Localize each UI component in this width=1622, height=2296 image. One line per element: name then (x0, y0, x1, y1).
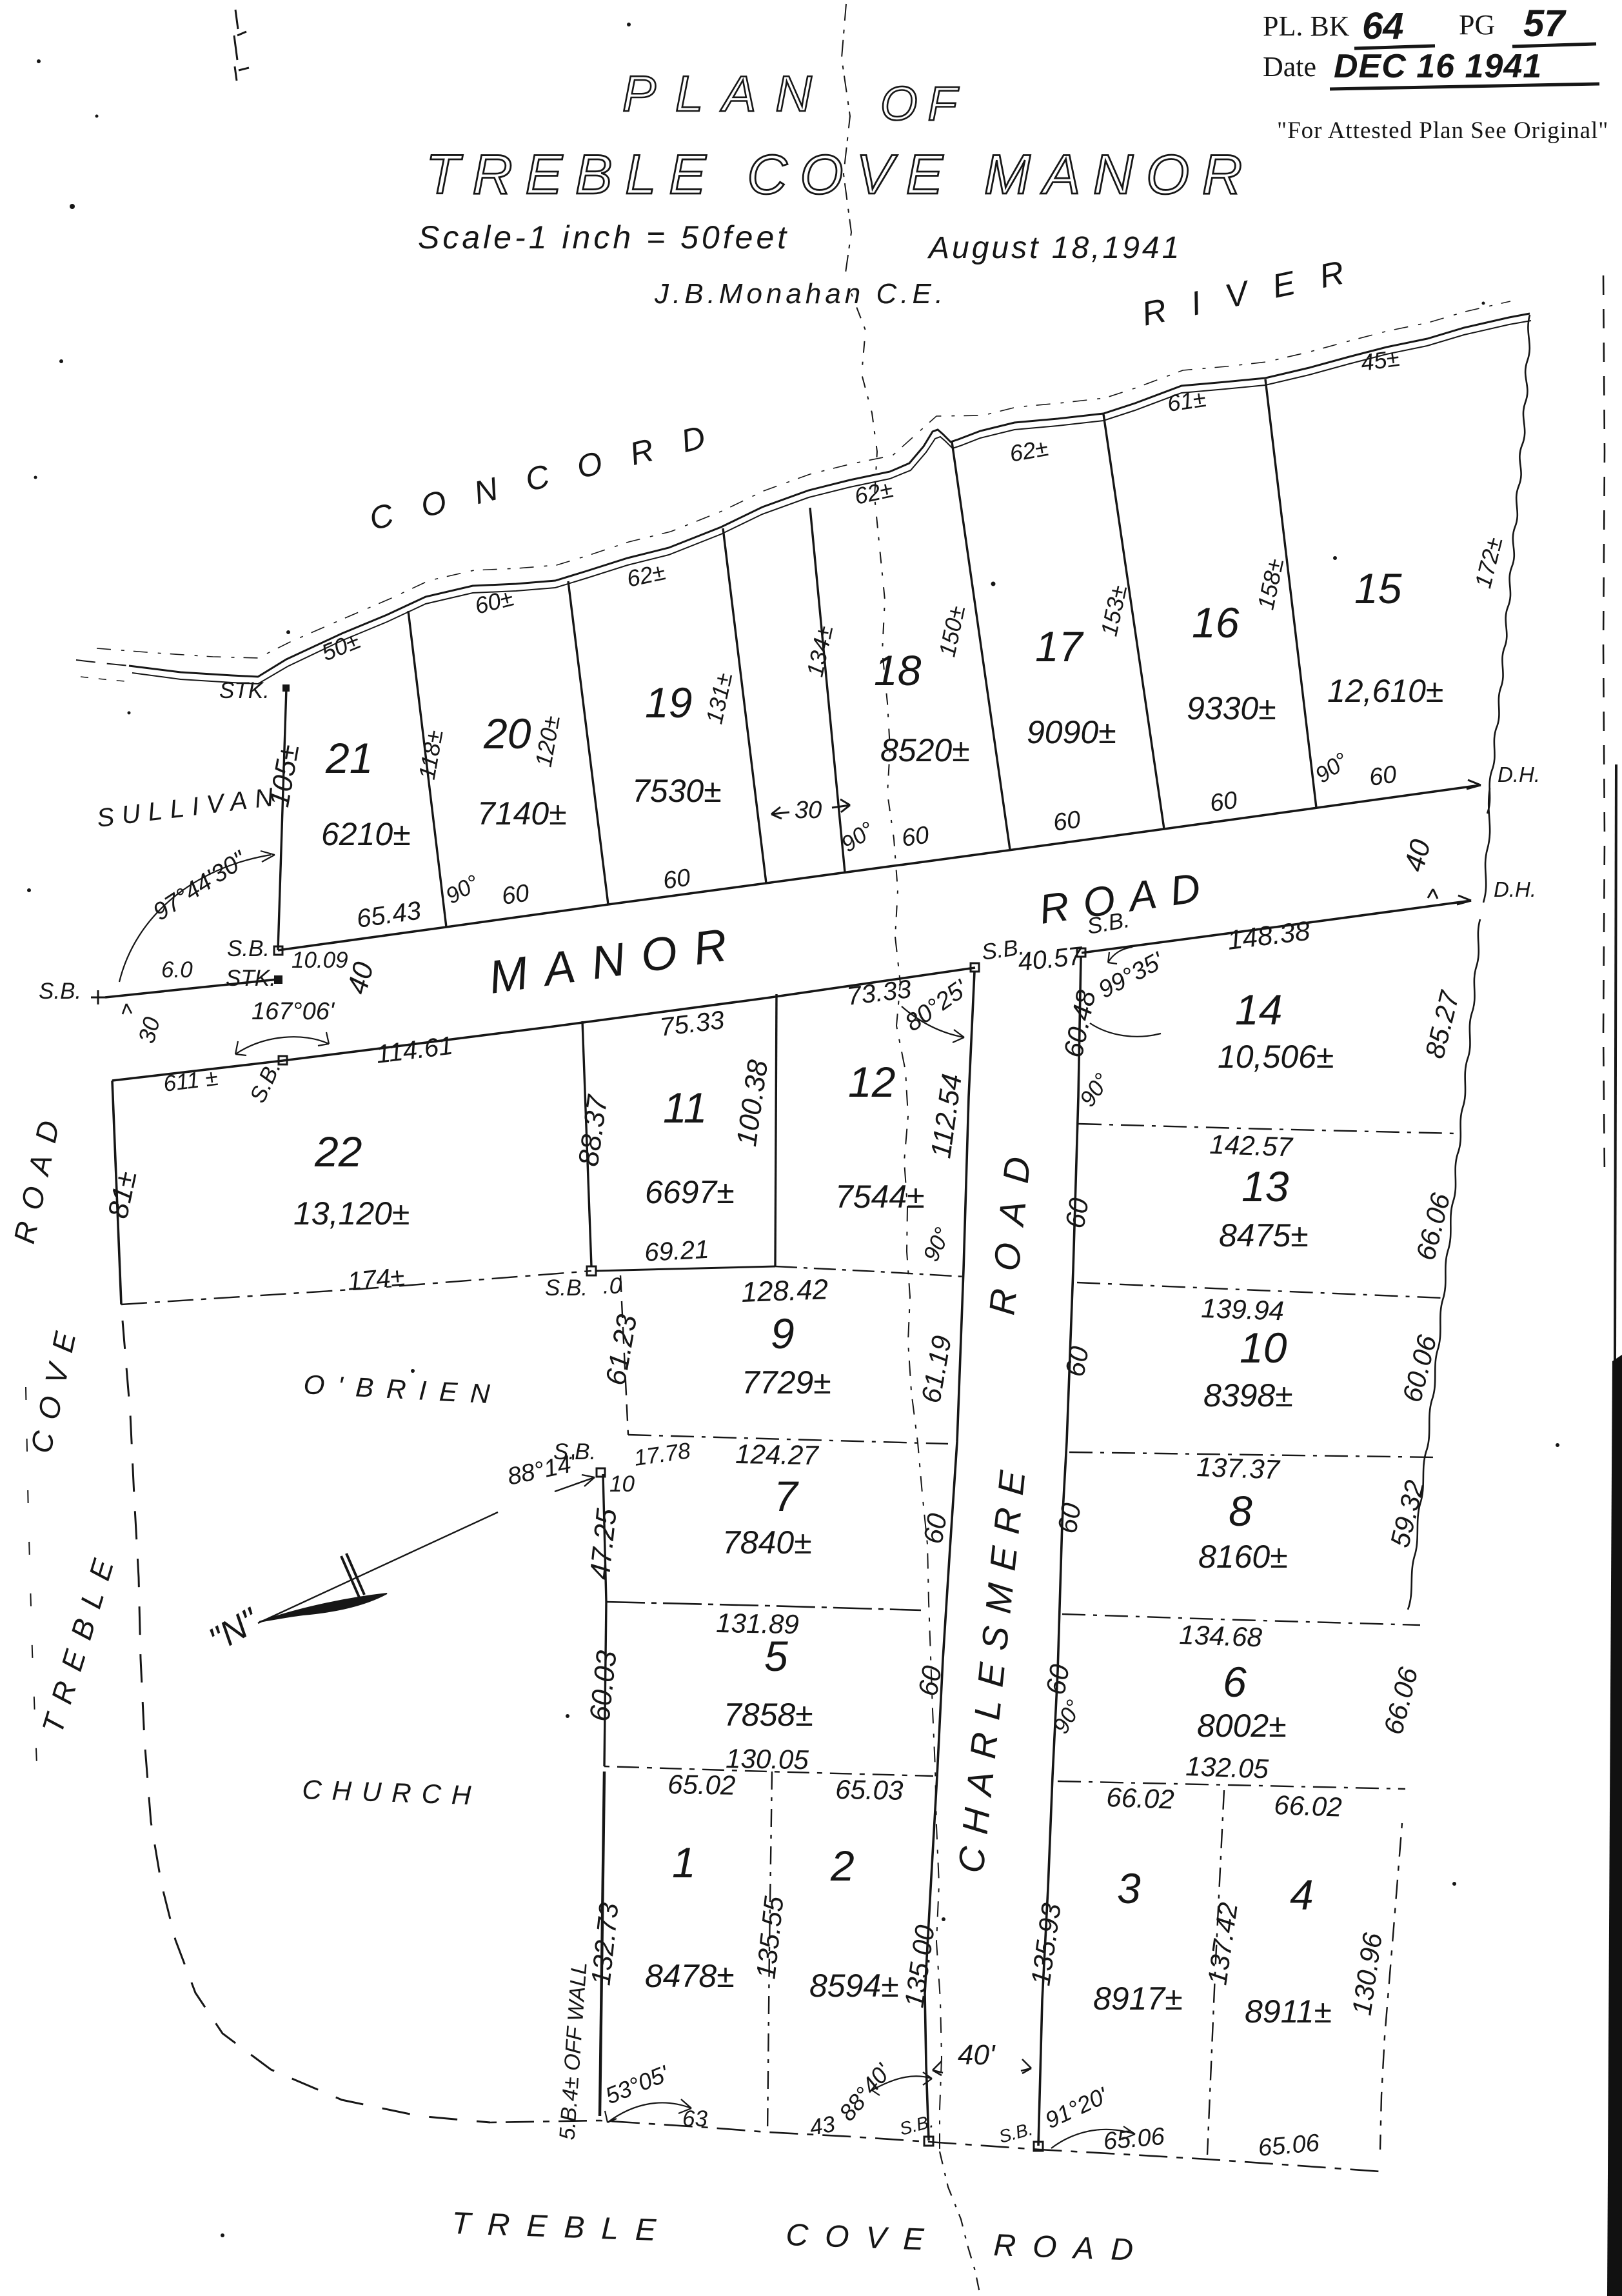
svg-text:60: 60 (1060, 1195, 1095, 1231)
svg-text:45±: 45± (1359, 344, 1401, 376)
svg-text:11: 11 (663, 1084, 707, 1132)
svg-text:66.02: 66.02 (1274, 1790, 1343, 1822)
svg-text:13,120±: 13,120± (293, 1195, 410, 1232)
svg-text:STK.: STK. (219, 678, 270, 703)
svg-text:40': 40' (958, 2039, 996, 2071)
svg-text:PLAN: PLAN (622, 65, 831, 122)
svg-text:PG: PG (1459, 9, 1495, 41)
svg-text:21: 21 (325, 734, 373, 782)
svg-text:7530±: 7530± (632, 773, 722, 809)
svg-text:60: 60 (1052, 1501, 1087, 1536)
svg-text:14: 14 (1235, 986, 1282, 1033)
svg-text:TREBLE COVE MANOR: TREBLE COVE MANOR (426, 144, 1255, 206)
svg-text:65.06: 65.06 (1102, 2123, 1166, 2155)
svg-text:17: 17 (1035, 623, 1084, 670)
svg-text:60: 60 (661, 864, 692, 894)
svg-text:65.03: 65.03 (835, 1774, 904, 1806)
svg-text:16: 16 (1192, 599, 1240, 646)
svg-text:124.27: 124.27 (735, 1439, 820, 1470)
svg-text:Date: Date (1263, 51, 1316, 83)
svg-text:6210±: 6210± (321, 816, 411, 852)
svg-text:J.B.Monahan C.E.: J.B.Monahan C.E. (654, 278, 947, 310)
svg-text:61±: 61± (1165, 385, 1207, 417)
svg-text:7840±: 7840± (722, 1524, 812, 1561)
svg-text:6.0: 6.0 (161, 957, 193, 983)
svg-text:137.37: 137.37 (1196, 1452, 1281, 1485)
svg-text:60: 60 (1051, 806, 1082, 836)
svg-text:DEC 16 1941: DEC 16 1941 (1334, 48, 1542, 85)
svg-text:12,610±: 12,610± (1327, 673, 1443, 709)
svg-text:7: 7 (774, 1472, 799, 1520)
svg-text:60: 60 (900, 821, 931, 852)
svg-text:10.09: 10.09 (292, 948, 348, 973)
svg-text:134.68: 134.68 (1179, 1619, 1263, 1652)
svg-text:69.21: 69.21 (644, 1235, 709, 1267)
svg-text:10: 10 (609, 1472, 635, 1497)
svg-text:S.B.: S.B. (39, 979, 81, 1004)
svg-text:4: 4 (1290, 1871, 1314, 1919)
svg-text:6: 6 (1223, 1658, 1247, 1706)
svg-text:STK.: STK. (226, 966, 276, 991)
svg-text:8475±: 8475± (1219, 1217, 1309, 1253)
svg-text:D.H.: D.H. (1498, 763, 1540, 786)
svg-text:S.B.: S.B. (545, 1275, 588, 1301)
svg-text:65.02: 65.02 (668, 1769, 736, 1801)
svg-text:CHURCH: CHURCH (302, 1774, 482, 1811)
svg-text:1: 1 (672, 1839, 696, 1886)
svg-text:8002±: 8002± (1197, 1708, 1287, 1744)
svg-text:65.06: 65.06 (1257, 2130, 1321, 2162)
svg-text:60: 60 (500, 879, 531, 910)
svg-text:10: 10 (1240, 1324, 1287, 1372)
svg-text:D.H.: D.H. (1494, 877, 1536, 901)
svg-text:7729±: 7729± (742, 1364, 831, 1401)
svg-text:.0: .0 (603, 1273, 622, 1299)
svg-text:8398±: 8398± (1203, 1377, 1293, 1413)
svg-text:9: 9 (771, 1310, 795, 1357)
svg-text:43: 43 (808, 2111, 838, 2141)
svg-text:7544±: 7544± (835, 1179, 925, 1215)
svg-text:30: 30 (795, 797, 822, 824)
svg-text:"For Attested Plan See Origina: "For Attested Plan See Original" (1277, 117, 1608, 144)
svg-text:OF: OF (880, 77, 967, 130)
svg-text:13: 13 (1241, 1163, 1289, 1210)
svg-text:3: 3 (1117, 1864, 1141, 1912)
svg-text:60: 60 (1367, 761, 1398, 791)
svg-text:174±: 174± (346, 1263, 406, 1296)
svg-text:COVE: COVE (786, 2218, 942, 2257)
svg-text:7140±: 7140± (477, 795, 567, 832)
svg-text:8520±: 8520± (880, 732, 970, 768)
svg-text:60: 60 (913, 1663, 948, 1699)
svg-text:66.02: 66.02 (1106, 1782, 1175, 1815)
svg-text:S.B.: S.B. (227, 936, 270, 961)
svg-text:60: 60 (918, 1511, 953, 1546)
svg-text:142.57: 142.57 (1209, 1129, 1294, 1163)
svg-text:8160±: 8160± (1198, 1539, 1288, 1575)
svg-text:132.05: 132.05 (1185, 1751, 1270, 1784)
svg-text:139.94: 139.94 (1201, 1293, 1285, 1326)
svg-text:22: 22 (314, 1128, 362, 1175)
svg-text:60: 60 (1060, 1344, 1095, 1379)
svg-text:18: 18 (874, 646, 922, 694)
svg-text:8478±: 8478± (645, 1958, 735, 1994)
svg-text:20: 20 (483, 710, 531, 757)
svg-text:128.42: 128.42 (741, 1273, 829, 1308)
svg-text:8911±: 8911± (1245, 1993, 1332, 2030)
svg-text:8917±: 8917± (1093, 1981, 1183, 2017)
svg-text:64: 64 (1362, 5, 1404, 47)
svg-text:5: 5 (764, 1632, 788, 1680)
svg-text:19: 19 (645, 679, 692, 726)
svg-text:August 18,1941: August 18,1941 (927, 231, 1182, 265)
svg-text:60: 60 (1208, 786, 1239, 817)
svg-text:57: 57 (1523, 3, 1567, 45)
svg-text:63: 63 (682, 2106, 707, 2131)
svg-text:9330±: 9330± (1187, 690, 1276, 726)
svg-text:130.05: 130.05 (726, 1743, 809, 1775)
svg-text:8594±: 8594± (809, 1968, 899, 2004)
svg-text:167°06': 167°06' (252, 998, 335, 1025)
svg-text:PL. BK: PL. BK (1263, 10, 1350, 42)
svg-text:15: 15 (1354, 564, 1402, 612)
svg-text:Scale-1 inch = 50feet: Scale-1 inch = 50feet (418, 219, 789, 255)
svg-text:6697±: 6697± (645, 1174, 735, 1210)
svg-text:12: 12 (848, 1058, 895, 1106)
svg-text:8: 8 (1229, 1487, 1252, 1535)
svg-text:ROAD: ROAD (993, 2228, 1151, 2268)
svg-text:60: 60 (1040, 1662, 1076, 1697)
svg-text:9090±: 9090± (1027, 714, 1116, 750)
svg-text:7858±: 7858± (724, 1697, 813, 1733)
svg-text:2: 2 (830, 1842, 855, 1890)
svg-text:10,506±: 10,506± (1218, 1039, 1334, 1075)
